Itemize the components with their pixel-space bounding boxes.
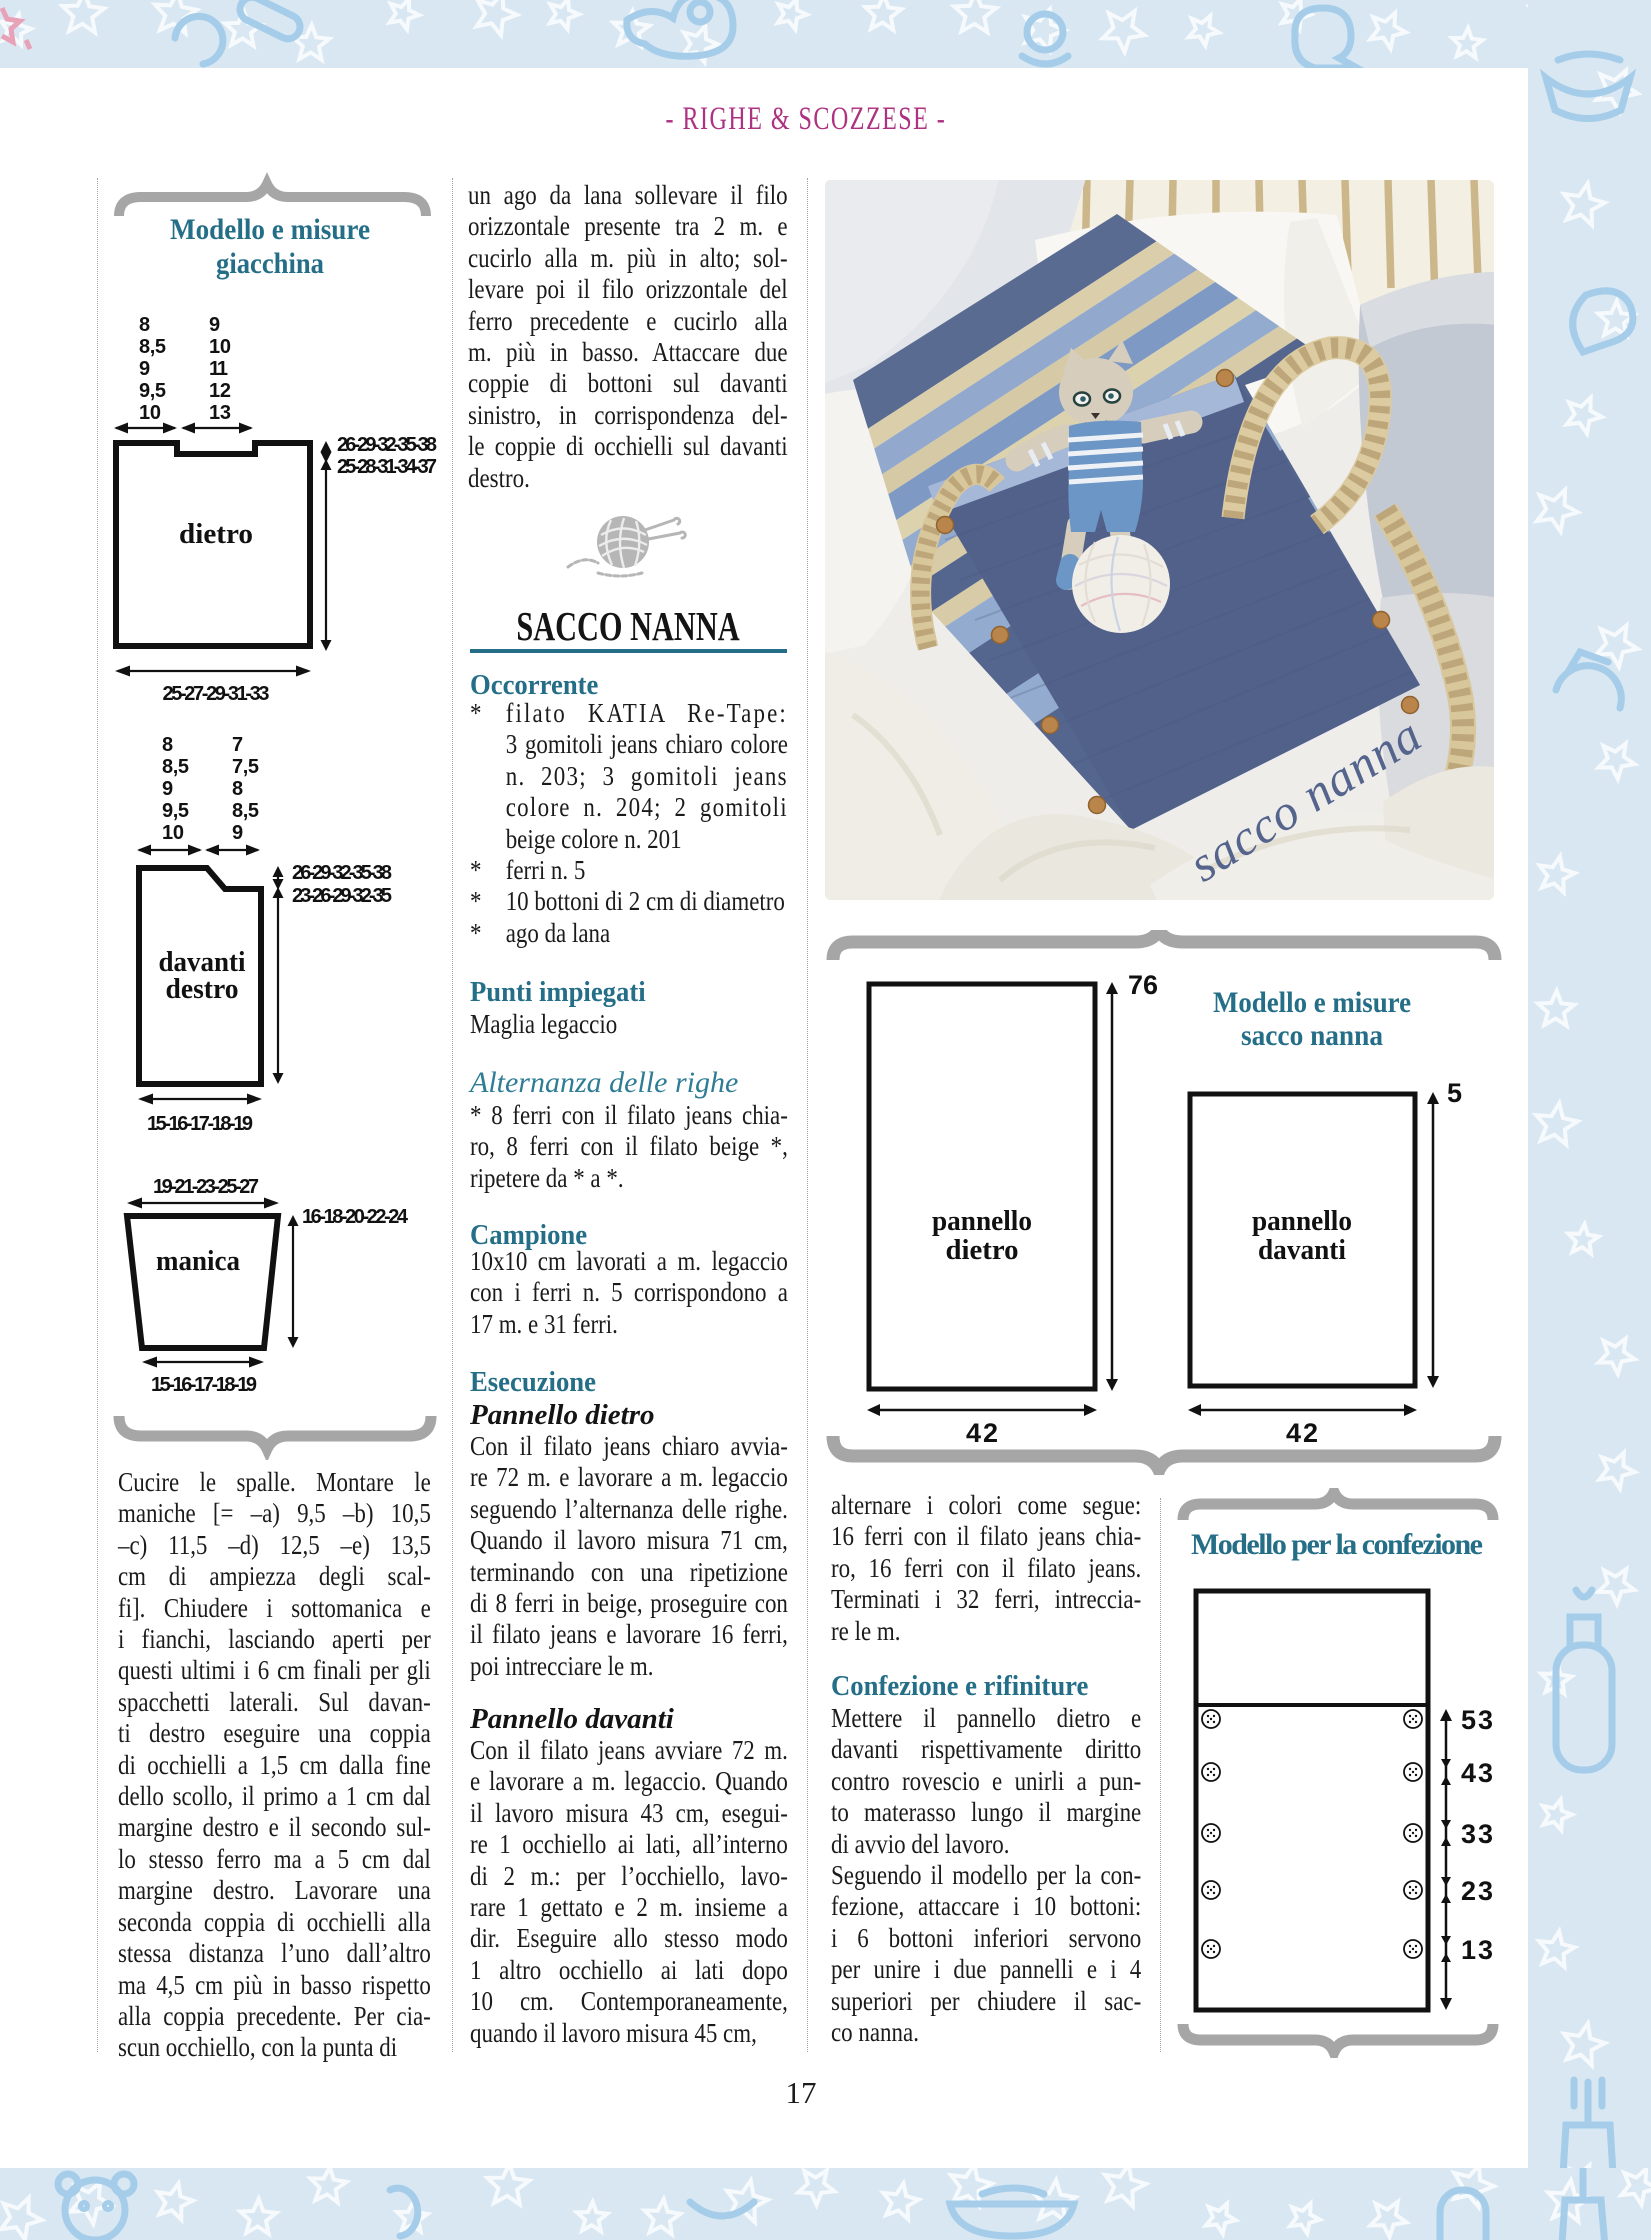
svg-text:53: 53 — [1461, 1705, 1493, 1735]
svg-text:8,5: 8,5 — [232, 800, 259, 822]
svg-text:davanti: davanti — [1258, 1234, 1346, 1266]
svg-text:23: 23 — [1461, 1876, 1493, 1906]
svg-text:sacco nanna: sacco nanna — [1241, 1019, 1383, 1052]
svg-text:42: 42 — [966, 1418, 998, 1448]
svg-text:9: 9 — [139, 358, 150, 380]
svg-text:16-18-20-22-24: 16-18-20-22-24 — [302, 1206, 409, 1228]
svg-text:pannello: pannello — [932, 1205, 1032, 1237]
svg-text:Modello e misure: Modello e misure — [170, 213, 370, 246]
svg-text:manica: manica — [156, 1245, 240, 1277]
svg-text:5: 5 — [1447, 1078, 1462, 1108]
svg-text:9: 9 — [162, 778, 173, 800]
svg-text:8: 8 — [232, 778, 243, 800]
svg-text:15-16-17-18-19: 15-16-17-18-19 — [151, 1374, 257, 1396]
svg-text:10: 10 — [139, 402, 161, 424]
svg-text:42: 42 — [1286, 1418, 1318, 1448]
svg-text:9,5: 9,5 — [162, 800, 189, 822]
svg-text:8: 8 — [139, 314, 150, 336]
svg-text:giacchina: giacchina — [216, 247, 324, 280]
svg-text:8,5: 8,5 — [139, 336, 166, 358]
svg-text:dietro: dietro — [946, 1234, 1019, 1266]
svg-text:11: 11 — [209, 358, 228, 380]
svg-text:8,5: 8,5 — [162, 756, 189, 778]
svg-text:destro: destro — [166, 973, 239, 1005]
svg-text:33: 33 — [1461, 1819, 1493, 1849]
svg-text:26-29-32-35-38: 26-29-32-35-38 — [337, 434, 437, 456]
svg-text:43: 43 — [1461, 1758, 1493, 1788]
svg-text:23-26-29-32-35: 23-26-29-32-35 — [292, 885, 392, 907]
svg-text:Modello e misure: Modello e misure — [1213, 986, 1411, 1019]
svg-text:8: 8 — [162, 734, 173, 756]
svg-text:9: 9 — [232, 822, 243, 844]
svg-text:15-16-17-18-19: 15-16-17-18-19 — [147, 1113, 253, 1135]
svg-text:25-28-31-34-37: 25-28-31-34-37 — [337, 456, 437, 478]
svg-text:Modello per la confezione: Modello per la confezione — [1191, 1528, 1483, 1561]
svg-text:25-27-29-31-33: 25-27-29-31-33 — [163, 683, 270, 705]
svg-text:12: 12 — [209, 380, 231, 402]
svg-text:9,5: 9,5 — [139, 380, 166, 402]
svg-text:19-21-23-25-27: 19-21-23-25-27 — [153, 1176, 259, 1198]
svg-text:9: 9 — [209, 314, 220, 336]
svg-text:26-29-32-35-38: 26-29-32-35-38 — [292, 862, 392, 884]
svg-text:13: 13 — [1461, 1935, 1493, 1965]
svg-text:10: 10 — [162, 822, 184, 844]
svg-text:pannello: pannello — [1252, 1205, 1352, 1237]
svg-text:76: 76 — [1128, 970, 1158, 1000]
svg-text:13: 13 — [209, 402, 231, 424]
svg-text:7: 7 — [232, 734, 243, 756]
svg-text:dietro: dietro — [179, 518, 253, 550]
svg-text:10: 10 — [209, 336, 231, 358]
svg-text:7,5: 7,5 — [232, 756, 259, 778]
